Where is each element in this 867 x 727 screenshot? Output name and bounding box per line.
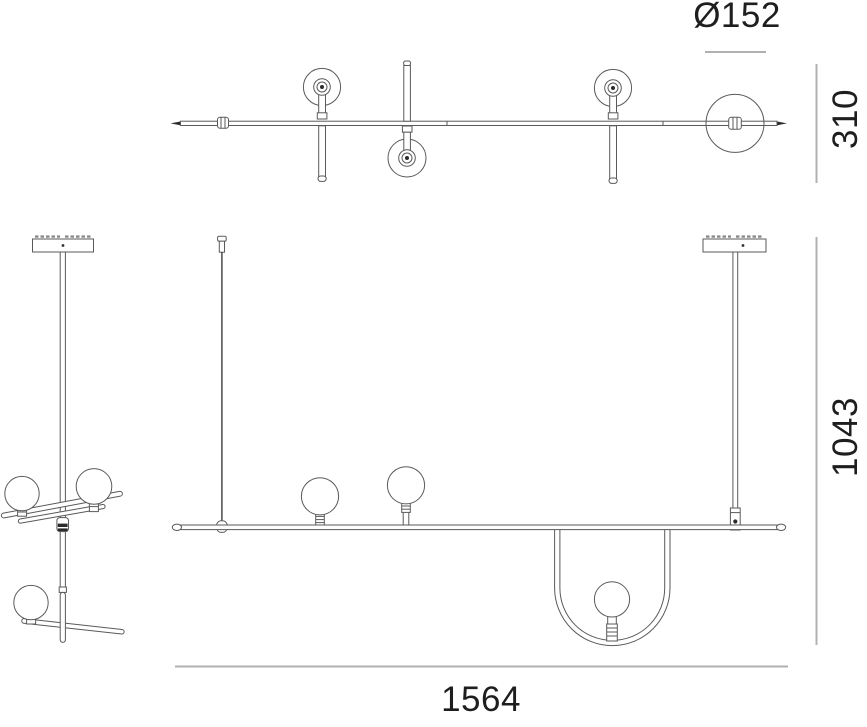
technical-drawing-canvas: Ø152 310 1043 1564 xyxy=(0,0,867,727)
rod-lower xyxy=(60,592,65,642)
bar-end-cap-right xyxy=(777,524,786,530)
cable-connector-top xyxy=(218,117,229,128)
sphere-1 xyxy=(301,478,338,525)
top-view xyxy=(171,61,788,183)
bar-left-tip xyxy=(171,121,182,125)
dimension-label-height: 1043 xyxy=(825,357,867,517)
dimension-label-depth: 310 xyxy=(825,54,867,184)
sphere-3 xyxy=(594,582,629,641)
rod-middle xyxy=(60,532,65,588)
sphere-arm-3 xyxy=(594,69,631,183)
bar-right-tip xyxy=(777,121,788,125)
ceiling-canopy-front xyxy=(703,237,766,252)
sphere-arm-2 xyxy=(388,61,426,177)
front-view xyxy=(172,236,785,645)
rod-upper xyxy=(60,252,65,520)
bar-end-cap-left xyxy=(172,524,181,530)
horizontal-bar xyxy=(181,525,777,530)
side-view xyxy=(1,237,124,643)
sphere-side-c xyxy=(14,585,48,624)
stem-rod xyxy=(733,252,738,508)
bar-top-view xyxy=(181,121,778,125)
rod-connector-side xyxy=(57,518,69,532)
drawing-sheet xyxy=(0,0,867,727)
sphere-side-b xyxy=(76,469,112,512)
dimension-label-sphere-diameter: Ø152 xyxy=(647,0,827,36)
sphere-2 xyxy=(387,467,424,525)
dimension-lines xyxy=(175,52,817,667)
rod-joint xyxy=(59,587,66,592)
lower-arm xyxy=(21,618,124,634)
suspension-cable xyxy=(217,236,228,532)
ceiling-canopy-side xyxy=(33,237,94,252)
stem-connector-top xyxy=(729,117,742,129)
dimension-label-width: 1564 xyxy=(381,680,581,720)
